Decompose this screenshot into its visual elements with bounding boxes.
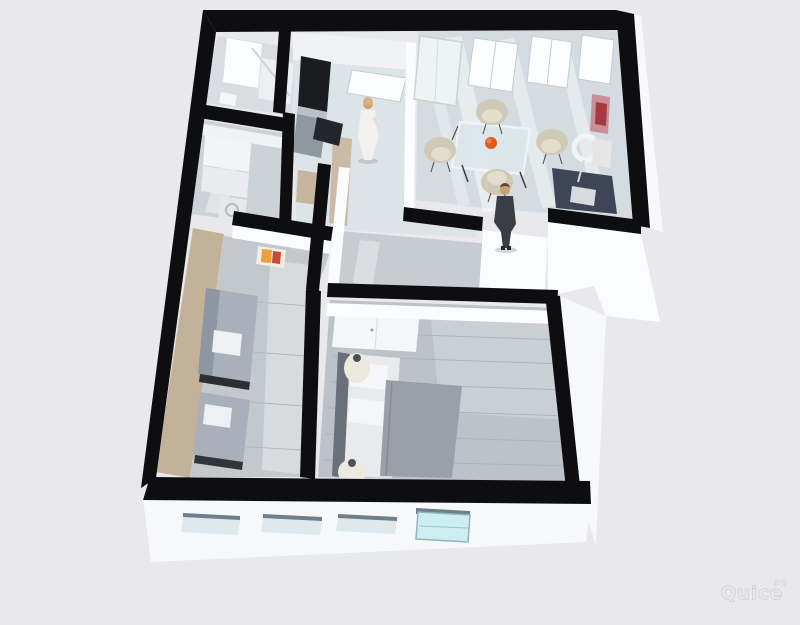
fruit-bowl [485,137,497,149]
chair-seat [482,109,502,123]
chair-seat [541,139,561,153]
living-artwork-color1 [261,249,272,263]
wall-artwork-white [592,138,612,168]
wall-artwork-red [595,102,607,126]
wall-top-back [203,10,620,32]
kitchen-dining-column [404,42,416,210]
bed-duvet [380,380,462,478]
facade-glass-door [416,508,470,542]
man-shoe [507,246,511,250]
wall-front-bottom [143,477,591,504]
floorplan-render-stage: Quice 3D [0,0,800,625]
wall-face [479,230,548,298]
watermark: Quice 3D [721,579,788,604]
fruit-highlight [487,139,492,144]
sofa-body [193,392,250,462]
facade-window-1 [181,513,240,535]
sofa-pillow [212,330,242,356]
bedside-lamp-cap [353,354,361,362]
window-recess [261,518,322,535]
window-recess [181,517,240,535]
chair-seat [431,147,451,161]
living-artwork-color2 [272,251,281,264]
man-shoe [501,246,505,250]
chair-seat [487,171,507,185]
living-sofa-1 [198,288,258,390]
wardrobe-handle [371,329,374,332]
sofa-pillow [203,404,232,428]
floorplan-3d-scene: Quice 3D [0,0,800,625]
dining-window-3 [578,35,614,84]
bathroom-window [223,38,262,88]
bedside-lamp-cap [348,459,356,467]
bed-pillow [348,398,386,426]
watermark-superscript: 3D [774,579,787,588]
facade-window-2 [261,514,322,535]
living-sofa-2 [193,392,250,470]
facade-window-3 [336,514,397,534]
kitchen-tall-cabinet [298,56,331,112]
